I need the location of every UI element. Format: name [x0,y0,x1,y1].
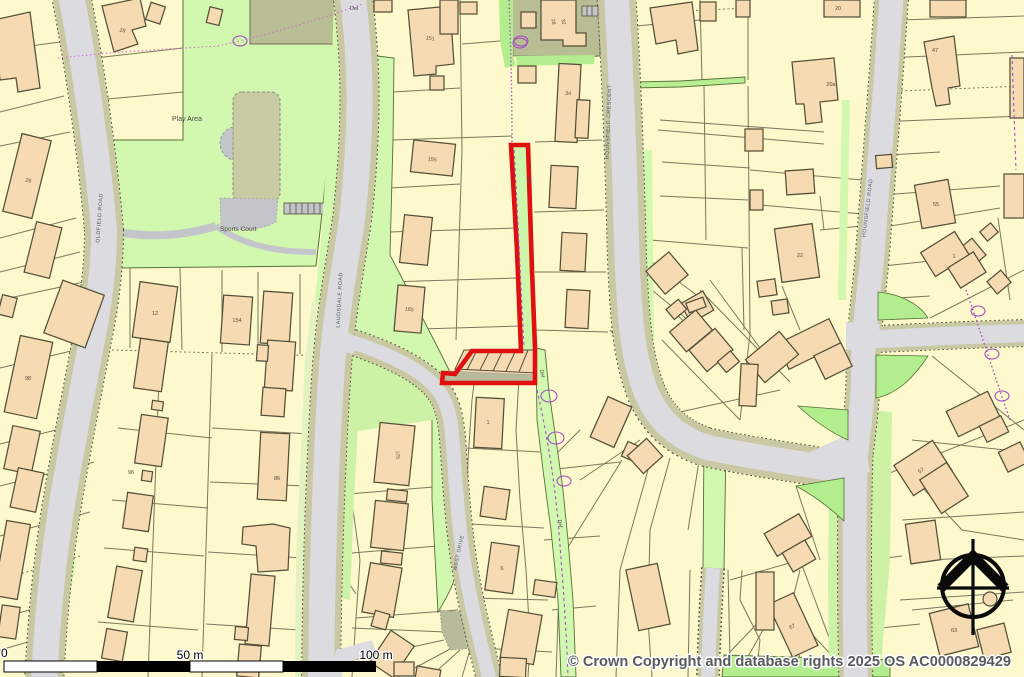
svg-text:50 m: 50 m [177,648,204,662]
svg-text:47: 47 [932,48,938,54]
svg-text:12: 12 [152,311,158,317]
svg-text:0: 0 [1,646,8,660]
svg-text:155: 155 [427,156,437,163]
svg-text:55: 55 [933,202,939,208]
svg-text:42: 42 [525,177,531,183]
svg-text:100 m: 100 m [359,648,392,662]
svg-text:34: 34 [565,91,571,97]
svg-text:154: 154 [232,318,241,324]
svg-text:22: 22 [797,253,803,259]
svg-text:151: 151 [425,35,435,42]
svg-text:98: 98 [25,376,31,382]
svg-text:1: 1 [952,254,955,260]
svg-text:165: 165 [404,306,414,313]
svg-text:Sports Court: Sports Court [220,226,257,233]
svg-text:63: 63 [951,628,957,634]
svg-text:Play Area: Play Area [172,116,202,123]
svg-text:175: 175 [394,450,401,459]
svg-text:96: 96 [128,470,134,476]
svg-text:Del: Del [350,6,358,12]
svg-text:6: 6 [500,566,503,572]
svg-text:20: 20 [835,6,841,12]
svg-text:1: 1 [486,420,489,426]
svg-text:20a: 20a [826,82,836,88]
svg-text:86: 86 [274,476,280,482]
svg-text:© Crown Copyright and database: © Crown Copyright and database rights 20… [568,653,1011,670]
